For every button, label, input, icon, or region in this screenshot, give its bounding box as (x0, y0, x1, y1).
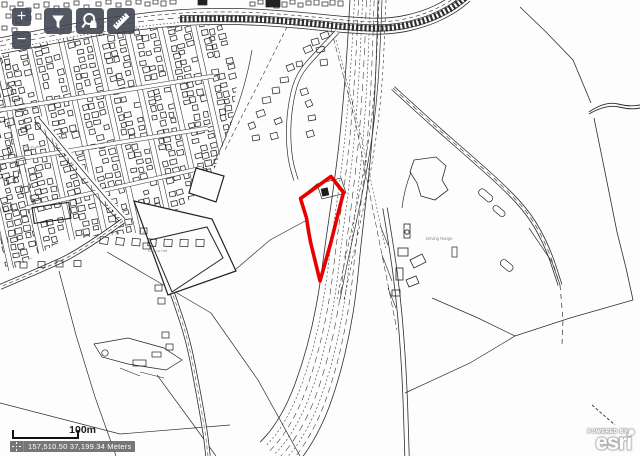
svg-text:Maes yr Haf: Maes yr Haf (148, 249, 167, 253)
svg-text:Tros-yr-afon: Tros-yr-afon (22, 145, 43, 149)
svg-text:Driving Range: Driving Range (426, 236, 453, 241)
svg-text:esri: esri (596, 430, 632, 455)
